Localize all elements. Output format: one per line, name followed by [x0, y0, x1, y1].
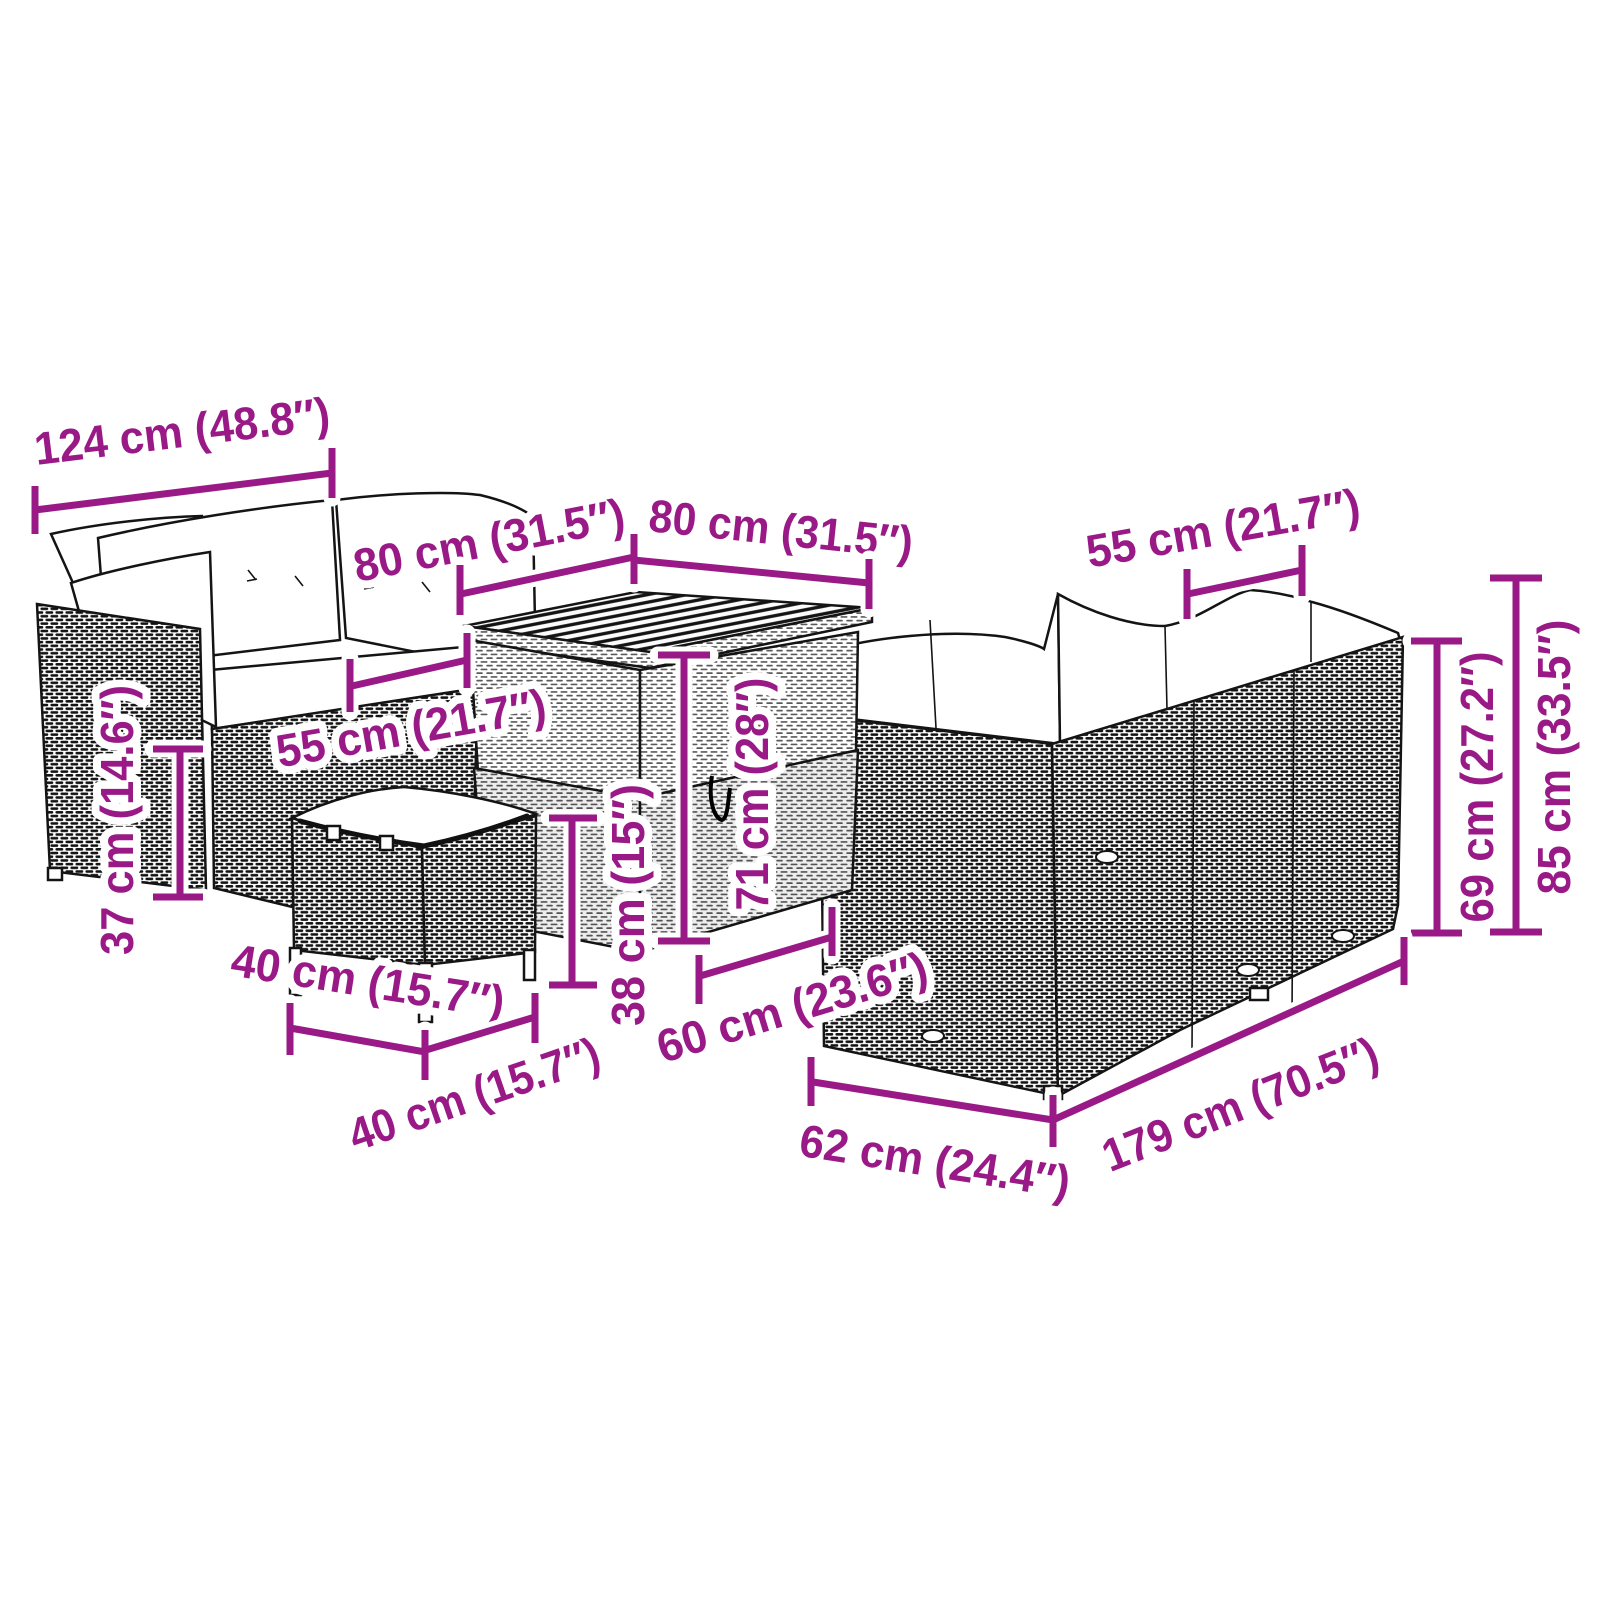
- svg-text:71 cm (28″): 71 cm (28″): [726, 678, 778, 911]
- svg-text:69 cm (27.2″): 69 cm (27.2″): [1451, 652, 1503, 923]
- svg-text:38 cm (15″): 38 cm (15″): [602, 784, 654, 1026]
- svg-text:37 cm (14.6″): 37 cm (14.6″): [91, 685, 143, 955]
- svg-text:85 cm (33.5″): 85 cm (33.5″): [1528, 620, 1580, 895]
